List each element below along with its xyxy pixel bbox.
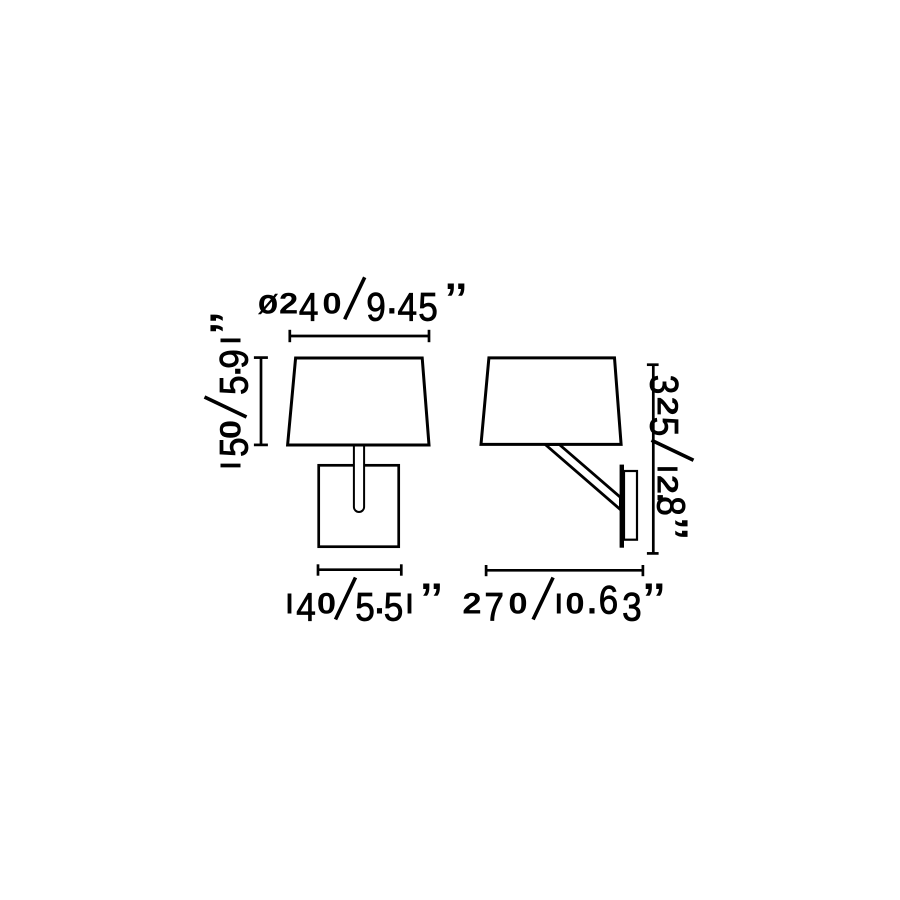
svg-text:’’: ’’	[643, 575, 666, 624]
svg-text:9: 9	[366, 284, 386, 329]
svg-text:2: 2	[279, 286, 298, 319]
svg-text:’’: ’’	[202, 312, 251, 335]
svg-text:4: 4	[398, 284, 418, 329]
svg-text:5: 5	[211, 375, 256, 395]
svg-text:3: 3	[622, 584, 642, 629]
svg-text:ø: ø	[258, 283, 278, 322]
svg-text:’’: ’’	[445, 274, 468, 323]
svg-text:4: 4	[299, 284, 319, 329]
svg-text:8: 8	[649, 496, 694, 516]
svg-text:l: l	[555, 589, 563, 620]
svg-text:0: 0	[508, 587, 527, 620]
svg-text:6: 6	[599, 577, 619, 622]
svg-text:l: l	[216, 336, 247, 344]
svg-text:0: 0	[322, 286, 341, 319]
svg-text:l: l	[406, 589, 414, 620]
svg-text:’’: ’’	[420, 575, 443, 624]
svg-text:.: .	[587, 581, 597, 622]
svg-text:5: 5	[642, 417, 687, 437]
svg-text:2: 2	[651, 397, 684, 416]
svg-text:l: l	[652, 465, 683, 473]
svg-text:2: 2	[651, 475, 684, 494]
svg-text:0: 0	[214, 420, 247, 439]
svg-text:.: .	[387, 280, 397, 321]
svg-text:0: 0	[317, 587, 336, 620]
svg-text:3: 3	[642, 375, 687, 395]
svg-text:5: 5	[384, 584, 404, 629]
svg-text:2: 2	[462, 587, 481, 620]
svg-text:4: 4	[296, 584, 316, 629]
svg-text:l: l	[216, 462, 247, 470]
svg-text:9: 9	[211, 349, 256, 369]
svg-text:5: 5	[355, 584, 375, 629]
svg-text:’’: ’’	[648, 517, 697, 540]
svg-text:5: 5	[418, 284, 438, 329]
svg-text:l: l	[286, 589, 294, 620]
svg-text:0: 0	[565, 587, 584, 620]
svg-text:7: 7	[484, 584, 504, 629]
svg-text:5: 5	[211, 437, 256, 457]
